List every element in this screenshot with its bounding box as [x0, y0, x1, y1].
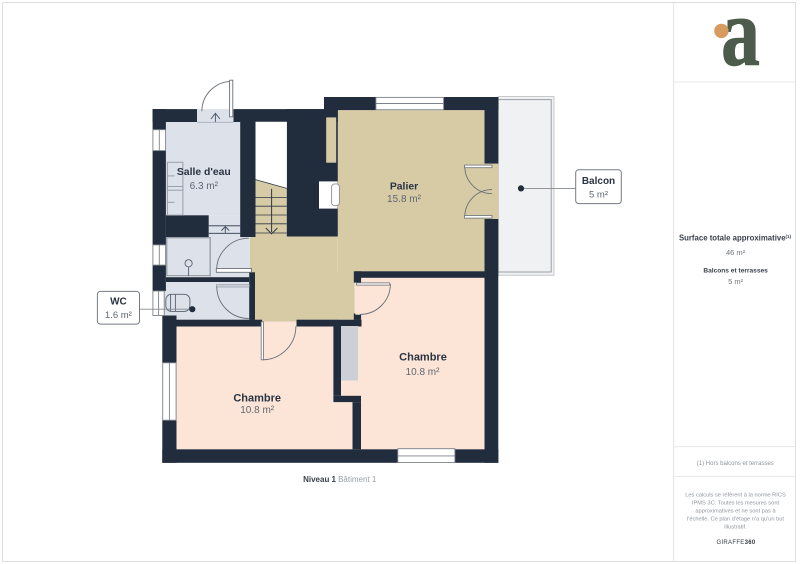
svg-text:GIRAFFE360: GIRAFFE360 — [716, 540, 755, 546]
svg-text:Palier: Palier — [390, 182, 418, 193]
svg-text:46 m²: 46 m² — [726, 248, 746, 257]
svg-text:Balcons et terrasses: Balcons et terrasses — [703, 267, 768, 274]
svg-text:Les calculs se réfèrent à la n: Les calculs se réfèrent à la norme RICS — [685, 493, 786, 499]
svg-text:10.8 m²: 10.8 m² — [406, 367, 441, 378]
svg-text:Chambre: Chambre — [233, 392, 281, 404]
svg-text:6.3 m²: 6.3 m² — [190, 181, 219, 192]
svg-text:illustratif.: illustratif. — [724, 525, 747, 531]
svg-text:(1) Hors balcons et terrasses: (1) Hors balcons et terrasses — [697, 461, 774, 467]
svg-text:approximatives et ne sont pas: approximatives et ne sont pas à — [695, 509, 776, 515]
svg-text:WC: WC — [110, 296, 127, 307]
svg-text:15.8 m²: 15.8 m² — [387, 194, 422, 205]
svg-text:Bâtiment 1: Bâtiment 1 — [338, 475, 377, 484]
svg-text:1.6 m²: 1.6 m² — [105, 310, 132, 321]
svg-text:a: a — [721, 0, 760, 86]
svg-text:l'échelle. Ce plan d'étage n'a: l'échelle. Ce plan d'étage n'a qu'un but — [687, 517, 784, 523]
svg-text:5 m²: 5 m² — [728, 277, 744, 286]
svg-text:IPMS 3C. Toutes les mesures so: IPMS 3C. Toutes les mesures sont — [692, 501, 780, 507]
svg-text:Balcon: Balcon — [582, 176, 615, 187]
svg-text:Salle d'eau: Salle d'eau — [177, 167, 231, 178]
svg-text:10.8 m²: 10.8 m² — [240, 405, 275, 416]
svg-text:Niveau 1: Niveau 1 — [303, 475, 336, 484]
svg-text:Surface totale approximative(1: Surface totale approximative(1) — [679, 234, 792, 243]
svg-text:Chambre: Chambre — [399, 351, 447, 363]
svg-text:5 m²: 5 m² — [589, 190, 608, 201]
